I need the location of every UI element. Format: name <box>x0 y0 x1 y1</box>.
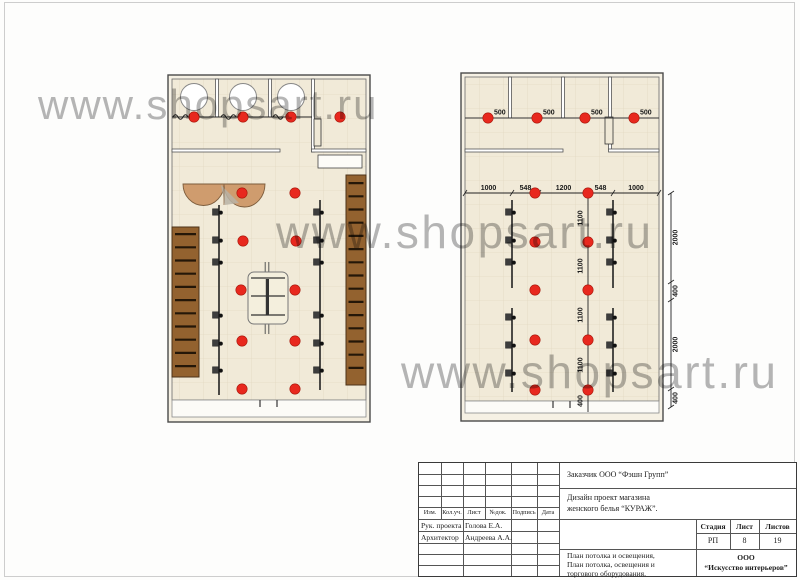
grid-line <box>419 496 559 497</box>
downlight <box>238 236 248 246</box>
downlight <box>530 285 540 295</box>
partition-wall <box>312 149 367 152</box>
rev-header-koluch: Кол.уч. <box>442 509 462 516</box>
project-line1: Дизайн проект магазина <box>567 493 650 502</box>
downlight <box>290 336 300 346</box>
company-line1: ООО <box>737 553 755 562</box>
company-line2: “Искусство интерьеров” <box>704 563 787 572</box>
downlight <box>583 285 593 295</box>
grid-line <box>696 519 697 576</box>
door-leaf <box>314 119 321 146</box>
downlight <box>583 385 593 395</box>
grid-line <box>696 533 796 534</box>
client-line: Заказчик ООО “Фэшн Групп” <box>567 470 668 479</box>
wall-shelving-right <box>346 175 366 385</box>
downlight <box>237 384 247 394</box>
role-label: Рук. проекта <box>421 521 462 530</box>
left-plan-drawing <box>155 70 380 430</box>
grid-line <box>419 554 559 555</box>
grid-line <box>419 565 559 566</box>
downlight <box>335 112 345 122</box>
reception-desk <box>183 184 265 207</box>
sheet-title-line2: План потолка, освещения и <box>567 560 655 569</box>
grid-line <box>419 519 559 520</box>
downlight <box>189 112 199 122</box>
storefront-band <box>172 400 366 417</box>
downlight <box>290 188 300 198</box>
svg-text:1000: 1000 <box>628 185 644 192</box>
sheet-title-line1: План потолка и освещения, <box>567 551 655 560</box>
downlight <box>530 237 540 247</box>
grid-line <box>419 531 559 532</box>
grid-line <box>559 488 796 489</box>
grid-line <box>730 519 731 549</box>
pouf <box>230 84 257 111</box>
title-block: Изм. Кол.уч. Лист №док. Подпись Дата Рук… <box>418 462 797 577</box>
svg-text:2000: 2000 <box>673 230 680 246</box>
downlight <box>583 237 593 247</box>
stage-header: Стадия <box>700 522 725 531</box>
sheets-total: 19 <box>774 536 782 545</box>
rev-header-izm: Изм. <box>424 509 437 516</box>
stage-value: РП <box>708 536 718 545</box>
role-name: Голова Е.А. <box>465 521 502 530</box>
grid-line <box>419 507 559 508</box>
grid-line <box>485 463 486 519</box>
downlight <box>236 285 246 295</box>
svg-text:500: 500 <box>543 110 555 117</box>
sheet-header: Лист <box>736 522 753 531</box>
door-leaf <box>605 117 613 144</box>
downlight <box>238 112 248 122</box>
rev-header-ndok: №док. <box>490 509 507 516</box>
rev-header-list: Лист <box>467 509 480 516</box>
partition-wall <box>609 149 660 152</box>
downlight <box>583 335 593 345</box>
svg-text:400: 400 <box>673 285 680 297</box>
downlight <box>483 113 493 123</box>
grid-line <box>419 474 559 475</box>
partition-wall <box>172 149 280 152</box>
grid-line <box>759 519 760 549</box>
svg-text:400: 400 <box>673 392 680 404</box>
sheets-header: Листов <box>765 522 789 531</box>
svg-text:1100: 1100 <box>578 307 585 322</box>
downlight <box>530 188 540 198</box>
dimension-line-right: 2000 400 2000 400 <box>668 191 680 409</box>
svg-text:1200: 1200 <box>556 185 572 192</box>
island-unit <box>248 262 288 334</box>
downlight <box>286 112 296 122</box>
svg-text:500: 500 <box>640 110 652 117</box>
rev-header-podpis: Подпись <box>512 509 535 516</box>
svg-text:1100: 1100 <box>578 258 585 273</box>
downlight <box>291 236 301 246</box>
bench <box>318 155 362 168</box>
downlight <box>530 335 540 345</box>
downlight <box>583 188 593 198</box>
downlight <box>629 113 639 123</box>
walls <box>461 73 663 421</box>
svg-text:1100: 1100 <box>578 210 585 225</box>
downlight <box>290 384 300 394</box>
grid-line <box>559 549 796 550</box>
role-label: Архитектор <box>421 533 459 542</box>
downlight <box>237 336 247 346</box>
storefront-band <box>465 401 659 413</box>
rev-header-data: Дата <box>542 509 555 516</box>
downlight <box>237 188 247 198</box>
grid-line <box>419 543 559 544</box>
downlight <box>290 285 300 295</box>
svg-text:2000: 2000 <box>673 337 680 353</box>
downlight <box>580 113 590 123</box>
svg-text:500: 500 <box>494 110 506 117</box>
svg-text:548: 548 <box>520 185 532 192</box>
project-line2: женского белья “КУРАЖ”. <box>567 504 658 513</box>
svg-text:1000: 1000 <box>481 185 497 192</box>
pouf <box>278 84 305 111</box>
sheet-number: 8 <box>743 536 747 545</box>
partition-wall <box>465 149 563 152</box>
svg-text:500: 500 <box>591 110 603 117</box>
svg-text:400: 400 <box>578 395 585 407</box>
wall-shelving-left <box>172 227 199 377</box>
grid-line <box>419 485 559 486</box>
right-plan-drawing: 500 500 500 500 1000 548 1200 548 1000 1… <box>455 60 690 425</box>
grid-line <box>559 519 796 520</box>
role-name: Андреева А.А. <box>465 533 512 542</box>
svg-text:1100: 1100 <box>578 357 585 372</box>
pouf <box>181 84 208 111</box>
downlight <box>530 385 540 395</box>
downlight <box>532 113 542 123</box>
svg-text:548: 548 <box>595 185 607 192</box>
sheet-title-line3: торгового оборудования. <box>567 569 646 578</box>
